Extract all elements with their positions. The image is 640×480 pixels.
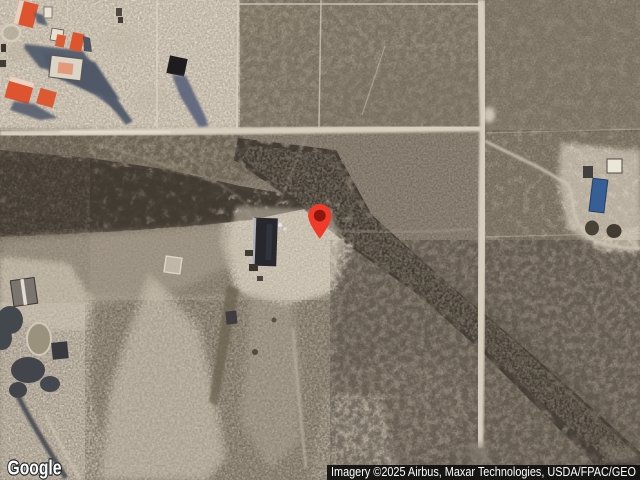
svg-text:Google: Google <box>8 458 62 480</box>
svg-text:Imagery ©2025 Airbus, Maxar Te: Imagery ©2025 Airbus, Maxar Technologies… <box>331 465 636 479</box>
